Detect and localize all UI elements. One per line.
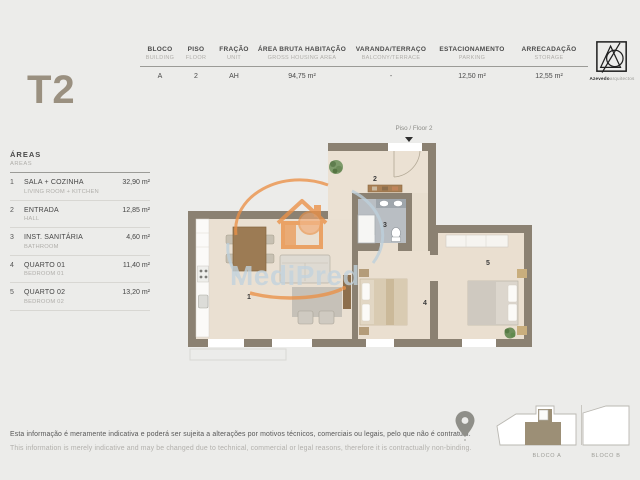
spec-value-area: 94,75 m² [256,73,348,80]
kitchen-counter [196,219,209,337]
site-key-plan: BLOCO A BLOCO B [440,392,640,470]
architect-logo-icon [595,40,629,74]
nightstand [359,327,369,335]
stove [198,266,209,282]
spec-value-fracao: AH [212,73,256,80]
disclaimer-pt: Esta informação é meramente indicativa e… [10,431,471,438]
apartment-floor-plan: MediPred 1 2 3 4 5 [180,135,540,365]
pillow [362,283,370,300]
area-row: 5 QUARTO 02BEDROOM 02 13,20 m² [10,283,150,311]
spec-table-values: A 2 AH 94,75 m² - 12,50 m² 12,55 m² [140,66,588,80]
sink [199,295,209,308]
spec-value-piso: 2 [180,73,212,80]
nightstand [517,269,527,278]
spec-value-estacionamento: 12,50 m² [434,73,510,80]
bloco-a-label: BLOCO A [532,453,561,459]
pillow [508,285,517,302]
page-title: T2 [27,70,76,110]
sink-basin [380,200,389,206]
nightstand [359,269,369,277]
areas-table-header: ÁREAS AREAS [10,150,150,173]
spec-value-bloco: A [140,73,180,80]
hall-plant-icon [329,160,343,174]
spec-value-arrecadacao: 12,55 m² [510,73,588,80]
architect-logo: Azevedoarquitectos [586,40,638,81]
spec-value-varanda: - [348,73,434,80]
room-label-5: 5 [486,260,490,267]
bloco-b-footprint [583,406,629,445]
terrace-outline [190,349,286,360]
pillow [508,304,517,321]
shower [358,215,375,243]
watermark-text: MediPred [230,260,360,291]
spec-table: BLOCOBUILDING PISOFLOOR FRAÇÃOUNIT ÁREA … [140,46,588,80]
room-label-2: 2 [373,176,377,183]
bedroom1-furniture [359,269,407,335]
room-label-4: 4 [423,300,427,307]
room-label-1: 1 [247,294,251,301]
location-pin-icon [456,411,475,441]
area-row: 2 ENTRADAHALL 12,85 m² [10,201,150,229]
areas-table: ÁREAS AREAS 1 SALA + COZINHALIVING ROOM … [10,150,150,311]
entrance-door-opening [388,143,422,151]
disclaimer-en: This information is merely indicative an… [10,445,472,452]
sink-basin [394,200,403,206]
pillow [362,304,370,321]
area-row: 1 SALA + COZINHALIVING ROOM + KITCHEN 32… [10,173,150,201]
hall-console [368,185,402,192]
stair-core [539,410,548,420]
corridor-floor [412,193,428,255]
spec-table-header: BLOCOBUILDING PISOFLOOR FRAÇÃOUNIT ÁREA … [140,46,588,61]
area-row: 3 INST. SANITÁRIABATHROOM 4,60 m² [10,228,150,256]
floor-indicator-label: Piso / Floor 2 [374,125,454,132]
room-label-3: 3 [383,222,387,229]
area-row: 4 QUARTO 01BEDROOM 01 11,40 m² [10,256,150,284]
nightstand [517,326,527,335]
bloco-b-label: BLOCO B [591,453,620,459]
architect-logo-name: Azevedoarquitectos [586,76,638,81]
wardrobe [446,235,508,247]
